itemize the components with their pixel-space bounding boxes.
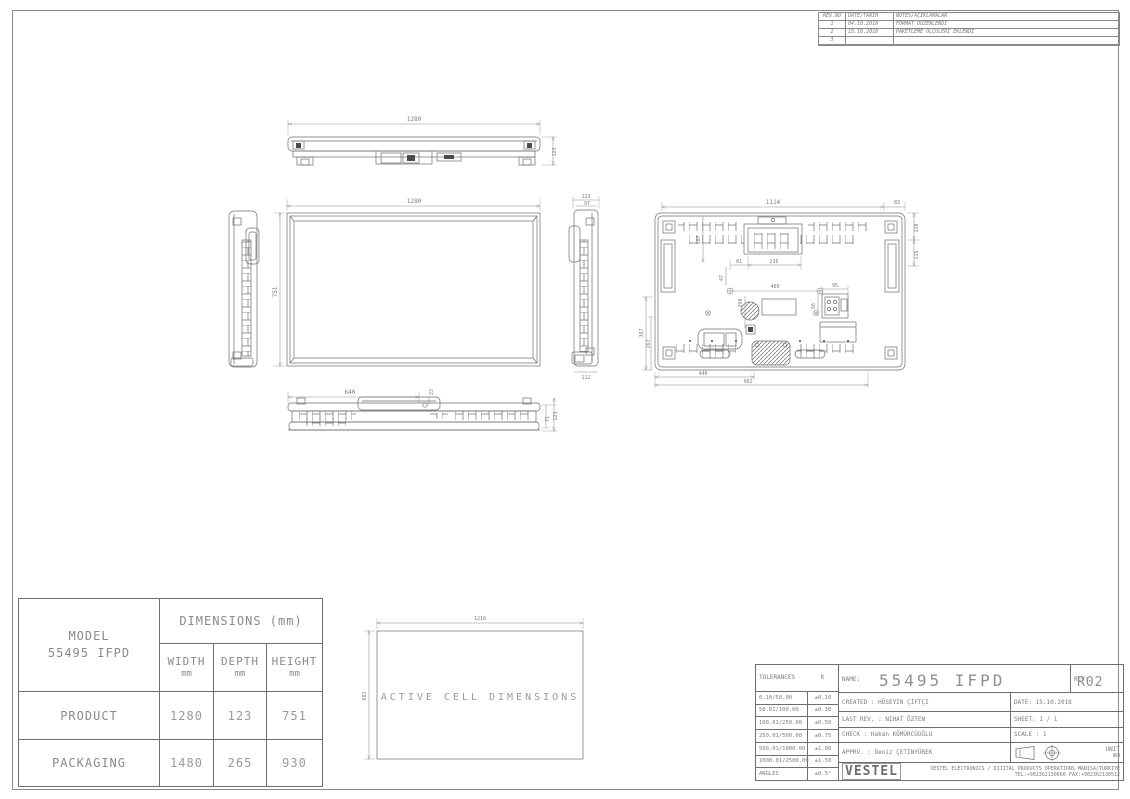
scale: SCALE : 1	[1011, 728, 1123, 742]
packaging-depth: 265	[213, 739, 266, 786]
model-value: 55495 IFPD	[48, 645, 130, 662]
product-row-label: PRODUCT	[19, 691, 159, 739]
product-height: 751	[266, 691, 322, 739]
tol-value: ±1.00	[808, 746, 838, 752]
back-top-width-dim: 1114	[766, 199, 781, 206]
tol-range: 0.10/50.00	[756, 692, 808, 704]
bottom-height-outer-dim: 123	[553, 411, 559, 420]
top-view-width-dim: 1280	[407, 116, 422, 123]
bottom-height-inner-dim: 71	[545, 416, 551, 422]
rev-date	[846, 37, 894, 45]
back-handle-left-dim: 81	[736, 259, 742, 265]
packaging-height: 930	[266, 739, 322, 786]
active-cell-height-dim: 681	[362, 691, 368, 700]
back-connector-width-dim: 95	[832, 283, 838, 289]
product-width: 1280	[159, 691, 213, 739]
unit-cell: UNIT mm	[1106, 747, 1120, 759]
front-view-width-dim: 1280	[407, 198, 422, 205]
front-view: 1280 751	[272, 198, 540, 366]
rev-value: R02	[1077, 675, 1103, 690]
tolerance-table: TOLERANCES K 0.10/50.00±0.10 50.01/100.0…	[756, 665, 839, 780]
rev-no: 3	[819, 37, 846, 45]
bottom-stand-offset-dim: 23	[429, 389, 435, 395]
right-side-bottom-dim: 112	[581, 375, 590, 381]
rev-date: 15.10.2018	[846, 29, 894, 37]
left-side-view	[229, 211, 259, 367]
depth-column-header: DEPTH mm	[213, 643, 266, 691]
rev-note: FORMAT DÜZENLENDİ	[894, 21, 1119, 29]
tol-range: 1000.01/2500.00	[756, 756, 808, 768]
rev-no: 1	[819, 21, 846, 29]
top-view-depth-dim: 123	[552, 147, 558, 156]
back-handle-width-dim: 236	[769, 259, 778, 265]
right-side-inner-depth-dim: 97	[584, 201, 590, 207]
back-mount-width-dim: 400	[770, 284, 779, 290]
height-column-header: HEIGHT mm	[266, 643, 322, 691]
front-view-height-dim: 751	[272, 286, 279, 297]
dimensions-header: DIMENSIONS (mm)	[159, 599, 322, 643]
rev-cell: REV: R02	[1071, 665, 1123, 692]
back-connector-height-dim: 66	[811, 303, 817, 309]
back-mount-offset-dim: 47	[719, 275, 725, 281]
tol-value: ±0.10	[808, 695, 838, 701]
name-label: NAME:	[842, 676, 860, 683]
title-block: TOLERANCES K 0.10/50.00±0.10 50.01/100.0…	[755, 664, 1124, 781]
name-cell: NAME: 55495 IFPD	[839, 665, 1071, 692]
revision-table: REV.NO DATE/TARİH NOTES/AÇIKLAMALAR 1 04…	[818, 12, 1120, 46]
tol-range: 250.01/500.00	[756, 730, 808, 742]
tol-value: ±0.50	[808, 720, 838, 726]
created-by: CREATED : HÜSEYİN ÇİFTÇİ	[839, 693, 1011, 711]
vestel-logo: VESTEL	[842, 763, 901, 780]
width-column-header: WIDTH mm	[159, 643, 213, 691]
packaging-row-label: PACKAGING	[19, 739, 159, 786]
notes-col-header: NOTES/AÇIKLAMALAR	[894, 13, 1119, 21]
rev-date: 04.10.2018	[846, 21, 894, 29]
product-depth: 123	[213, 691, 266, 739]
projection-unit-cell: UNIT mm	[1011, 743, 1123, 762]
tol-range: ANGLES	[756, 768, 808, 780]
active-cell-label: ACTIVE CELL DIMENSIONS	[381, 692, 579, 703]
tol-range: 50.01/100.00	[756, 705, 808, 717]
tol-value: ±0.30	[808, 707, 838, 713]
top-view: 1280 123	[288, 116, 558, 165]
right-side-view: 123 97 112	[569, 194, 599, 381]
back-left-inner-dim: 267	[646, 339, 652, 348]
drawing-sheet: 1280 123	[0, 0, 1130, 799]
active-cell-view: 1210 681 ACTIVE CELL DIMENSIONS	[362, 616, 583, 759]
back-right-upper-dim: 120	[914, 223, 920, 232]
company-info: VESTEL ELECTRONICS / DIJITAL PRODUCTS OP…	[901, 766, 1120, 778]
back-left-outer-dim: 367	[639, 328, 645, 337]
tolerances-header: TOLERANCES	[756, 665, 807, 691]
tol-range: 100.01/250.00	[756, 717, 808, 729]
projection-symbol-icon	[1014, 745, 1072, 761]
back-top-right-dim: 83	[894, 200, 900, 206]
rev-note: PAKETLEME ÖLÇÜLERİ EKLENDİ	[894, 29, 1119, 37]
last-rev-by: LAST REV. : NIHAT ÖZTEN	[839, 712, 1011, 726]
company-line1: VESTEL ELECTRONICS / DIJITAL PRODUCTS OP…	[901, 766, 1120, 772]
model-cell: MODEL 55495 IFPD	[19, 599, 159, 691]
back-right-lower-dim: 115	[914, 250, 920, 259]
dimensions-table: MODEL 55495 IFPD DIMENSIONS (mm) WIDTH m…	[18, 598, 323, 787]
back-handle-offset-dim: 187	[696, 235, 702, 244]
right-side-depth-dim: 123	[581, 194, 590, 200]
rev-no: 2	[819, 29, 846, 37]
rev-col-header: REV.NO	[819, 13, 846, 21]
rev-note	[894, 37, 1119, 45]
tolerances-k: K	[807, 674, 838, 681]
drawing-name: 55495 IFPD	[879, 671, 1005, 690]
tol-value: ±1.50	[808, 758, 838, 764]
back-center-height-dim: 290	[738, 298, 744, 307]
checked-by: CHECK : Hakan KÖMÜRCÜOĞLU	[839, 728, 1011, 742]
tol-value: ±0.5°	[808, 771, 838, 777]
unit-value: mm	[1106, 753, 1120, 759]
tol-value: ±0.75	[808, 733, 838, 739]
model-label: MODEL	[68, 628, 109, 645]
active-cell-width-dim: 1210	[474, 616, 486, 622]
company-row: VESTEL VESTEL ELECTRONICS / DIJITAL PROD…	[839, 763, 1123, 780]
date-col-header: DATE/TARİH	[846, 13, 894, 21]
back-view: 1114 83 120 115 1	[639, 199, 920, 388]
approved-by: APPRV. : Deniz ÇETİNYÜREK	[839, 743, 1011, 762]
sheet: SHEET: 1 / 1	[1011, 712, 1123, 726]
date: DATE: 15.10.2018	[1011, 693, 1123, 711]
tol-range: 500.01/1000.00	[756, 743, 808, 755]
bottom-view: 640 23 71 123	[288, 389, 559, 431]
back-bottom-width-dim: 962	[743, 379, 752, 385]
company-line2: TEL:+902362130660 FAX:+902362130512	[901, 772, 1120, 778]
bottom-stand-width-dim: 640	[345, 389, 356, 396]
back-bottom-left-dim: 440	[698, 371, 707, 377]
packaging-width: 1480	[159, 739, 213, 786]
